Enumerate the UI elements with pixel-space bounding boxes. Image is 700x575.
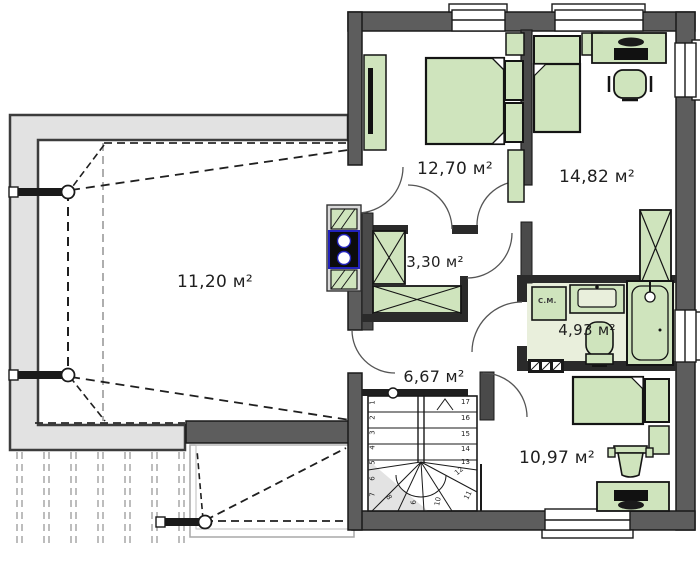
tv-unit (364, 55, 386, 150)
terrace-post-bottom (62, 369, 75, 382)
flue-duct (338, 252, 351, 265)
door-closet (467, 233, 512, 278)
closet-furniture (373, 231, 461, 313)
wall-bottom (352, 511, 695, 530)
hall-area-label: 6,67 м² (374, 367, 494, 386)
door-bathroom (472, 302, 522, 352)
flue-duct (338, 235, 351, 248)
porch-beam (162, 518, 202, 526)
window-room-bottom (542, 509, 633, 538)
porch-roof (156, 421, 354, 537)
roof-hip-1 (70, 145, 104, 190)
stair-number: 6 (370, 476, 377, 480)
tv (368, 68, 373, 134)
porch-wall (186, 421, 354, 443)
pillow (505, 103, 523, 142)
terrace-beam-bottom (14, 371, 64, 379)
laptop-lid (618, 501, 644, 510)
stair-number: 15 (461, 431, 470, 438)
nightstand (506, 33, 524, 55)
stair-number: 7 (370, 492, 377, 496)
wall-corridor-stub (452, 225, 478, 234)
pillow (534, 36, 580, 64)
terrace-post-top (62, 186, 75, 199)
door-bedroom (408, 185, 452, 229)
bedroom-area-label: 12,70 м² (395, 159, 515, 179)
double-bed (426, 58, 523, 144)
desk (597, 482, 669, 511)
roof-hip-4 (71, 377, 350, 420)
washing-machine-label: С.М. (538, 297, 557, 305)
bed (573, 377, 669, 424)
bathroom-area-label: 4,93 м² (537, 321, 637, 339)
stair-number: 17 (461, 399, 470, 406)
sink (570, 285, 624, 313)
terrace-beam-top (14, 188, 64, 196)
wall-left-lower (348, 373, 362, 530)
laptop (614, 490, 648, 501)
vent-grille-top (331, 209, 357, 229)
wall-bathroom-left-upper (517, 283, 527, 302)
window-room-right-top (552, 4, 645, 31)
floor-plan-drawing (0, 0, 700, 575)
roof-hip-2 (71, 150, 348, 190)
room-bottom-area-label: 10,97 м² (497, 448, 617, 468)
stair-number: 3 (370, 430, 377, 434)
wardrobe (640, 210, 671, 286)
window-room-right-side (675, 40, 700, 100)
stair-number: 4 (370, 445, 377, 449)
laptop (614, 48, 648, 60)
terrace-area-label: 11,20 м² (155, 272, 275, 292)
room-bottom-furniture (573, 377, 669, 511)
chimney-block (327, 205, 361, 291)
bathroom-radiator (528, 359, 564, 373)
roof-hip-3 (70, 377, 105, 421)
porch-post (199, 516, 212, 529)
pillow (505, 61, 523, 100)
wall-closet-left (362, 213, 373, 330)
stair-number: 13 (461, 459, 470, 466)
vent-grille-bottom (331, 270, 357, 289)
wall-bathroom-left-lower (517, 346, 527, 363)
stair-number: 2 (370, 415, 377, 419)
wall-closet-bottom (362, 314, 468, 322)
closet-wardrobe-bottom (373, 286, 461, 313)
desk-chair (609, 70, 651, 100)
pergola-lines (17, 452, 184, 547)
single-bed (534, 36, 580, 132)
stair-number: 5 (370, 460, 377, 464)
stair-number: 16 (461, 415, 470, 422)
window-bathroom-side (675, 310, 700, 362)
window-bedroom-top (449, 4, 507, 31)
laptop-lid (618, 38, 644, 47)
floor-plan: 11,20 м² 12,70 м² 14,82 м² 3,30 м² 4,93 … (0, 0, 700, 575)
bathtub-faucet (645, 292, 655, 302)
wall-stairs-top (362, 389, 468, 396)
room-right-area-label: 14,82 м² (537, 167, 657, 187)
closet-area-label: 3,30 м² (400, 253, 470, 271)
wall-corridor-right (521, 222, 532, 283)
stair-number: 14 (461, 446, 470, 453)
walkline-start (388, 388, 398, 398)
room-right-furniture (534, 33, 671, 286)
pillow (645, 379, 669, 422)
stair-number: 1 (370, 400, 377, 404)
desk (592, 33, 666, 63)
stair-number: 9 (409, 500, 416, 505)
wall-left-upper (348, 12, 362, 165)
